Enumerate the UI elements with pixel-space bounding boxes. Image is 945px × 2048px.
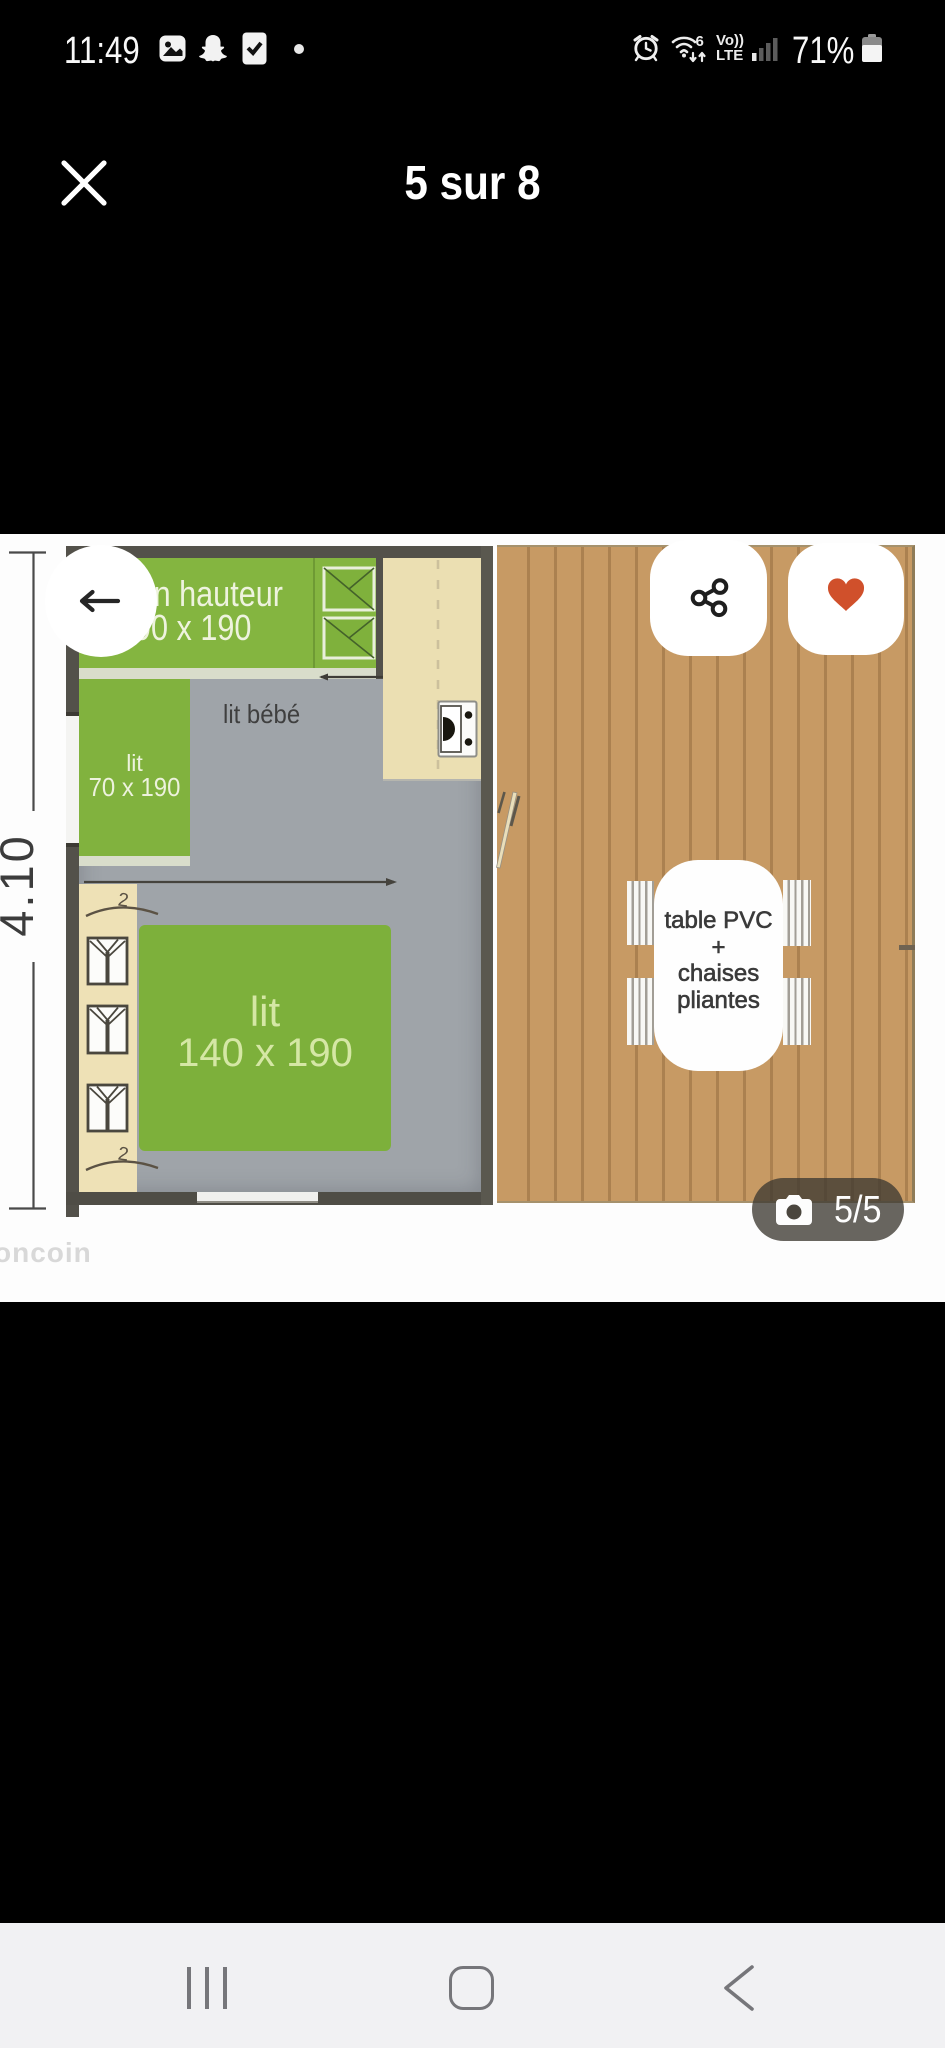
svg-text:4.10: 4.10 (0, 833, 43, 936)
svg-text:6: 6 (696, 33, 704, 50)
